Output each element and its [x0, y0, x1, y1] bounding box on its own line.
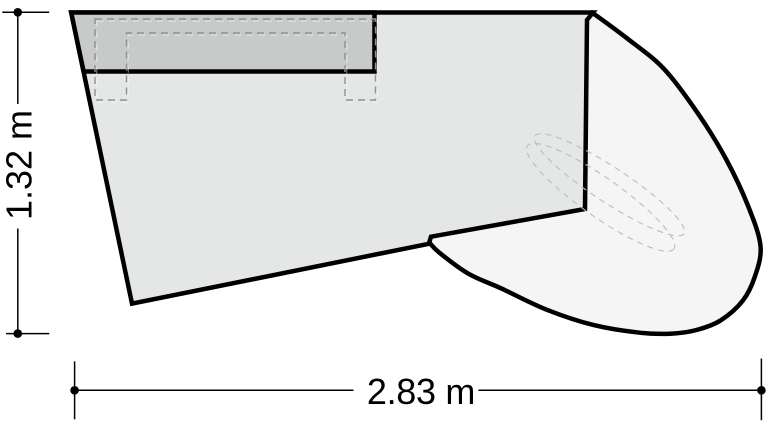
- svg-text:2.83 m: 2.83 m: [367, 371, 475, 412]
- svg-text:1.32 m: 1.32 m: [0, 110, 40, 220]
